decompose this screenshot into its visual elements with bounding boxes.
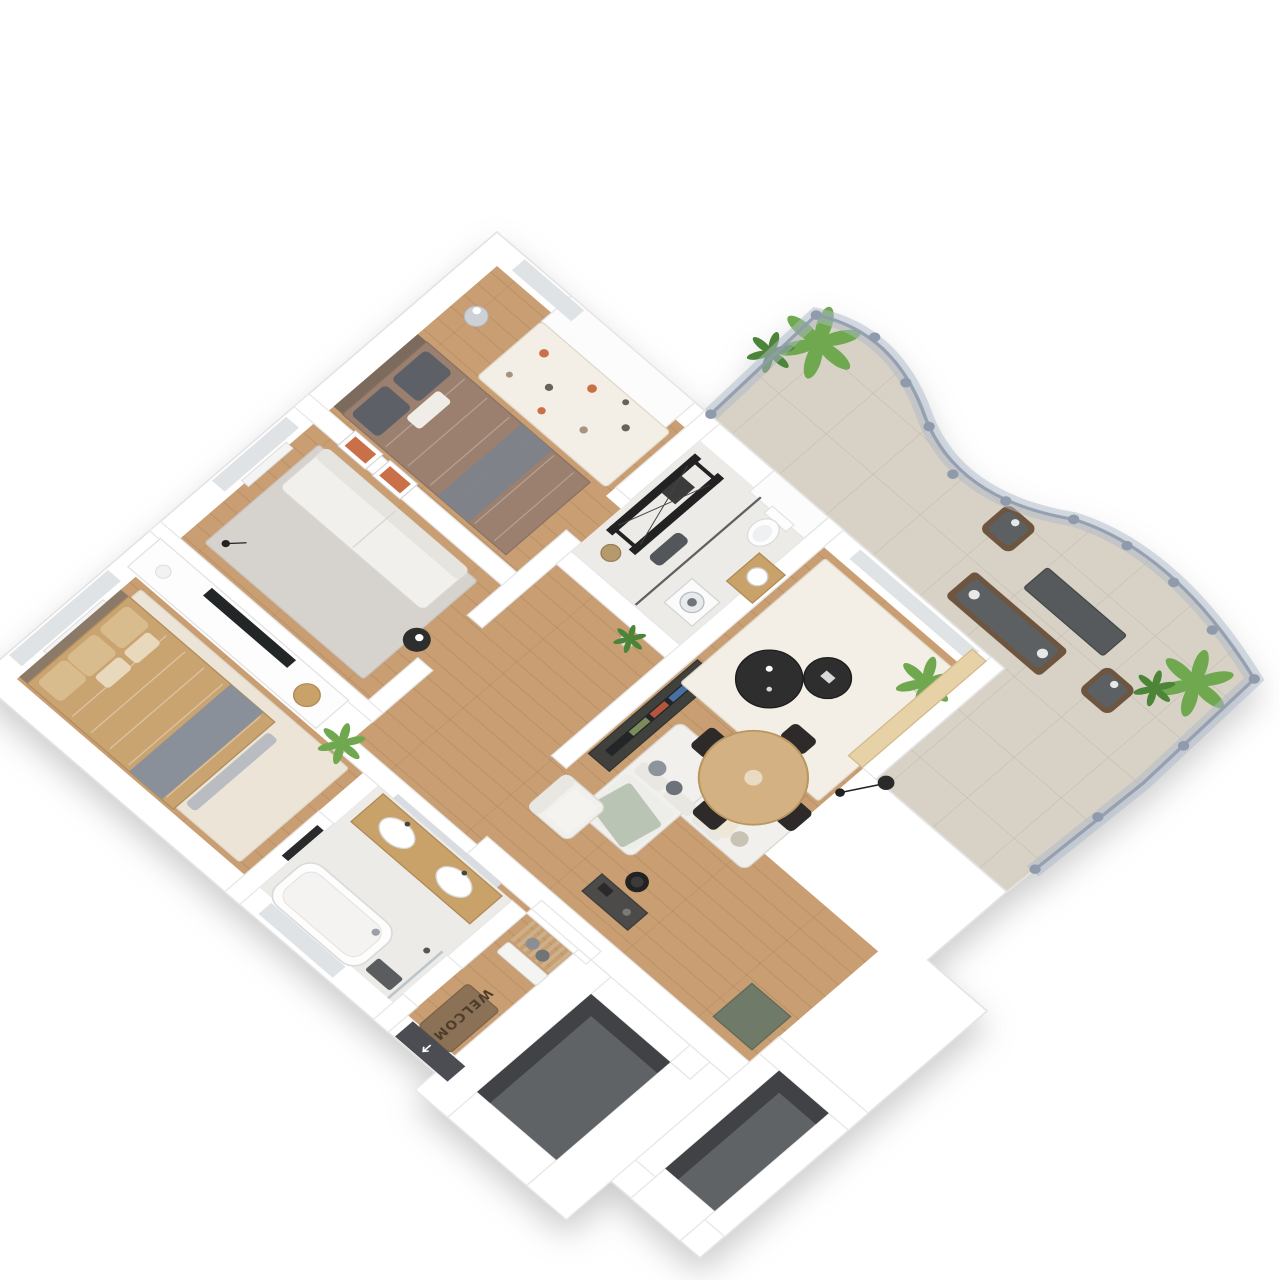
scene-shadow-wrapper: WELCOME: [0, 113, 1279, 1280]
floorplan-svg: WELCOME: [0, 0, 1279, 1280]
floorplan-scene: WELCOME: [0, 0, 1279, 1280]
